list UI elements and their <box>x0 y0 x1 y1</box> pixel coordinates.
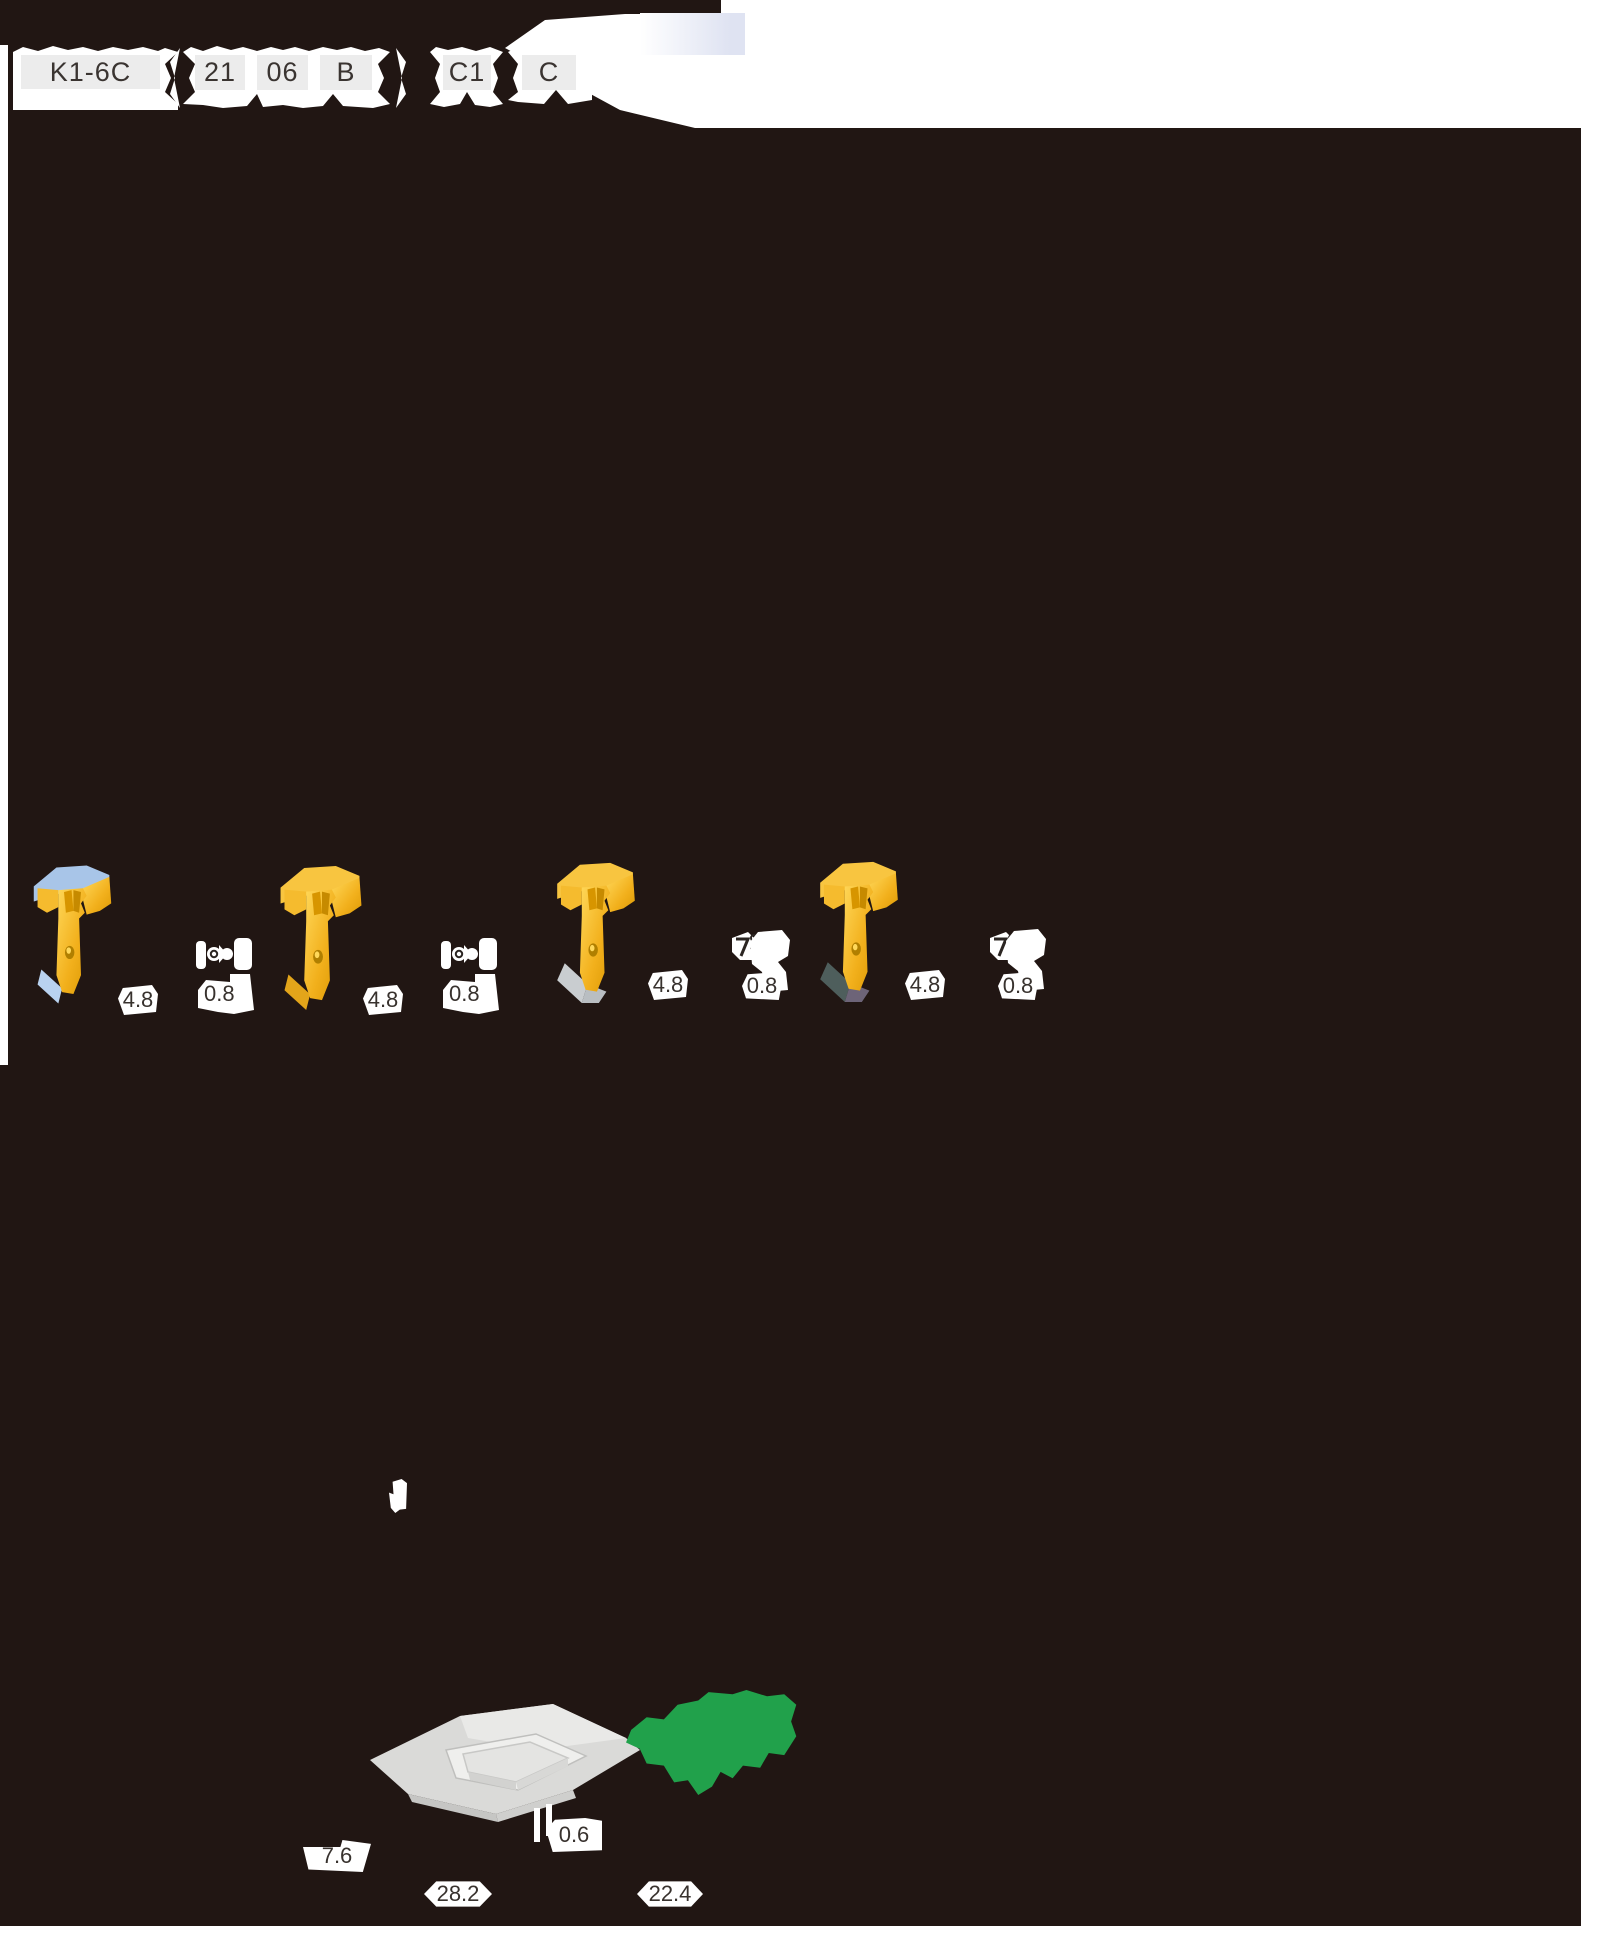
insert-3d-view-3 <box>552 861 640 1003</box>
dim-callout-radius-3: 0.8 <box>742 972 782 1000</box>
dim-callout-length: 28.2 <box>424 1879 492 1909</box>
code-breaker-label: C1 <box>449 57 486 88</box>
brace-shard-2 <box>396 48 408 108</box>
dim-length: 28.2 <box>437 1883 480 1905</box>
shim-3d-view <box>368 1698 643 1833</box>
dim-callout-radius-4: 0.8 <box>998 972 1038 1000</box>
insert-3d-view-4 <box>815 860 903 1002</box>
dim-edge: 0.6 <box>559 1824 590 1846</box>
code-style-label: B <box>336 57 355 88</box>
dim-callout-radius-2: 0.8 <box>443 974 499 1014</box>
profile-fragment-glyph-1 <box>196 933 252 975</box>
code-box-hand: C <box>522 55 576 90</box>
dim-callout-width: 22.4 <box>637 1879 703 1909</box>
dim-callout-width-4: 4.8 <box>905 970 945 1000</box>
dim-width-1: 4.8 <box>123 989 154 1011</box>
bottom-white-band <box>0 1926 1600 1949</box>
torn-speck <box>389 1479 407 1513</box>
dim-callout-side: 7.6 <box>303 1840 371 1872</box>
insert-3d-view-2 <box>276 864 366 1012</box>
code-family-label: K1-6C <box>50 57 132 88</box>
dim-width: 22.4 <box>649 1883 692 1905</box>
profile-fragment-glyph-2 <box>441 933 497 975</box>
dim-radius-3: 0.8 <box>747 975 778 997</box>
code-box-family: K1-6C <box>21 55 160 89</box>
dim-radius-1: 0.8 <box>204 983 235 1005</box>
dim-callout-radius-1: 0.8 <box>198 974 254 1014</box>
edge-tick-1 <box>534 1808 540 1842</box>
dim-width-3: 4.8 <box>653 974 684 996</box>
dim-callout-width-1: 4.8 <box>118 985 158 1015</box>
right-edge-sliver <box>1581 120 1600 1949</box>
code-size-b-label: 06 <box>266 57 298 88</box>
dim-callout-edge: 0.6 <box>546 1818 602 1852</box>
dim-width-2: 4.8 <box>368 989 399 1011</box>
catalog-page: { "codes": { "family": "K1-6C", "size_a"… <box>0 0 1600 1949</box>
page-corner-white-block <box>721 0 1600 128</box>
dim-radius-4: 0.8 <box>1003 975 1034 997</box>
dim-width-4: 4.8 <box>910 974 941 996</box>
corner-gradient-patch <box>640 13 745 55</box>
insert-3d-view-1 <box>30 862 115 1007</box>
code-hand-label: C <box>539 57 560 88</box>
code-box-size-b: 06 <box>257 55 308 90</box>
dim-radius-2: 0.8 <box>449 983 480 1005</box>
code-box-size-a: 21 <box>195 55 245 90</box>
left-edge-sliver <box>0 45 8 1065</box>
code-box-breaker: C1 <box>443 55 491 90</box>
code-size-a-label: 21 <box>204 57 236 88</box>
dim-callout-width-3: 4.8 <box>648 970 688 1000</box>
green-marker-blob <box>626 1690 798 1795</box>
dim-callout-width-2: 4.8 <box>363 985 403 1015</box>
code-box-style: B <box>320 55 372 90</box>
dim-side: 7.6 <box>322 1845 353 1867</box>
